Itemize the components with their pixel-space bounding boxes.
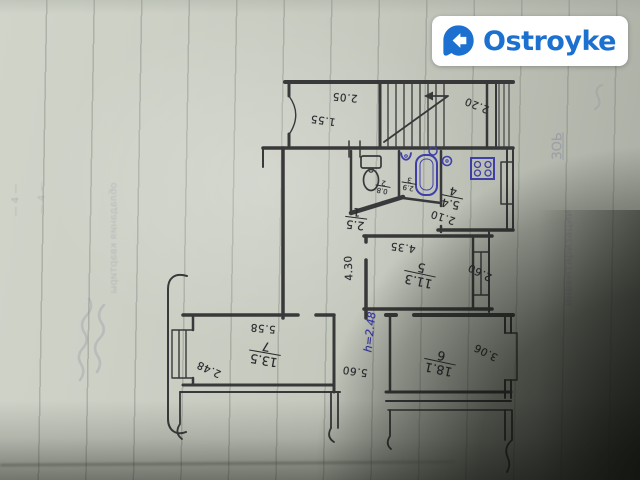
walls xyxy=(180,82,513,410)
floor-plan-drawing xyxy=(0,0,640,480)
room-label-wc: 0.8 2 xyxy=(374,177,392,195)
room-label-hallway: 2.5 1 xyxy=(343,205,368,232)
room-label-6: 18.1 6 xyxy=(422,346,459,379)
dim-hall-length: 4.30 xyxy=(342,255,355,281)
logo-text: Ostroyke xyxy=(483,26,616,57)
balcony xyxy=(168,275,187,433)
break-marks xyxy=(177,392,512,472)
room-label-bathroom: 2.9 3 xyxy=(400,174,418,192)
room-label-5: 11.3 5 xyxy=(402,258,439,291)
bleed-squiggles xyxy=(79,85,602,380)
ostroyke-logo: Ostroyke xyxy=(432,16,628,66)
room-number: 5 xyxy=(416,260,426,274)
dim-loggia-a: 2.05 xyxy=(332,90,358,104)
door-arc xyxy=(289,96,296,133)
room-number: 6 xyxy=(436,348,446,362)
room-label-7: 13.5 7 xyxy=(247,337,283,369)
room-number: 7 xyxy=(261,339,271,353)
room-number: 1 xyxy=(352,205,361,218)
room-number: 2 xyxy=(381,178,387,186)
floor-plan-photo: — 4 — — 4 — обладания квартиры инвентари… xyxy=(0,0,640,480)
home-bubble-icon xyxy=(442,23,475,59)
room-number: 3 xyxy=(407,175,413,183)
room-number: 4 xyxy=(449,184,459,197)
dim-room7-width: 5.58 xyxy=(250,321,276,335)
bathtub-fixture xyxy=(416,155,437,195)
stove-fixture xyxy=(443,157,495,180)
staircase xyxy=(384,82,509,148)
